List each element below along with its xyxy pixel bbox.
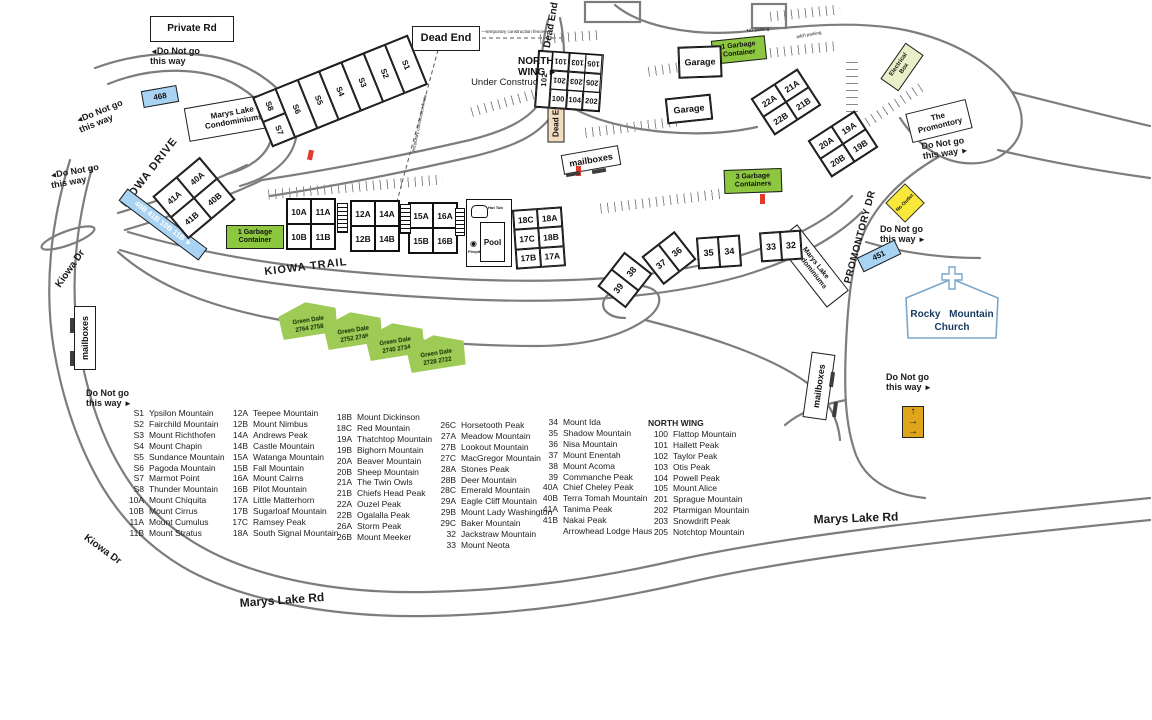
stairs-icon: [455, 208, 465, 236]
legend-row: 27A Meadow Mountain: [436, 431, 552, 442]
legend-row: 102 Taylor Peak: [648, 451, 749, 462]
unit-name: Marmot Point: [149, 473, 200, 484]
unit-code: 27B: [436, 442, 456, 453]
unit-name: Snowdrift Peak: [673, 516, 730, 527]
red-marker: [760, 194, 765, 204]
unit-name: Mount Enentah: [563, 450, 621, 461]
unit-name: Powell Peak: [673, 473, 720, 484]
church-name-line1: Rocky Mountain: [900, 309, 1004, 322]
unit-label-text: S4: [334, 85, 346, 97]
unit-code: 19A: [332, 434, 352, 445]
unit-name: Mount Dickinson: [357, 412, 420, 423]
unit-code: 12A: [228, 408, 248, 419]
hot-tub-label: Hot Tub: [488, 206, 508, 210]
unit-label: 202: [582, 91, 600, 111]
unit-code: 103: [648, 462, 668, 473]
unit-label-text: S2: [378, 67, 390, 79]
unit-name: Sprague Mountain: [673, 494, 742, 505]
unit-code: 203: [648, 516, 668, 527]
unit-name: Ypsilon Mountain: [149, 408, 214, 419]
unit-code: 33: [436, 540, 456, 551]
sign-text: 1 Garbage: [238, 229, 272, 237]
unit-code: [538, 526, 558, 537]
legend-row: 39 Commanche Peak: [538, 472, 652, 483]
unit-name: Tanima Peak: [563, 504, 612, 515]
legend-row: 36 Nisa Mountain: [538, 439, 652, 450]
unit-code: 38: [538, 461, 558, 472]
arrow-icon: ◄: [150, 47, 157, 56]
unit-name: Chief Cheley Peak: [563, 482, 633, 493]
sign-text: Private Rd: [167, 23, 216, 35]
legend-row: 20A Beaver Mountain: [332, 456, 432, 467]
unit-code: 29A: [436, 496, 456, 507]
unit-label: 18A: [537, 207, 562, 228]
legend-row: S8 Thunder Mountain: [124, 484, 225, 495]
unit-code: S5: [124, 452, 144, 463]
legend-row: 26B Mount Meeker: [332, 532, 432, 543]
north-wing-label-line1: NORTH: [518, 56, 557, 67]
unit-name: Watanga Mountain: [253, 452, 324, 463]
unit-code: 105: [648, 483, 668, 494]
legend-row: 28B Deer Mountain: [436, 475, 552, 486]
do-not-go-label: ◄Do Not go this way: [150, 46, 200, 67]
unit-name: Mount Chiquita: [149, 495, 206, 506]
unit-label: Garage: [678, 46, 721, 77]
legend-row: 19A Thatchtop Mountain: [332, 434, 432, 445]
unit-code: 17C: [228, 517, 248, 528]
unit-label: 103: [568, 53, 586, 73]
unit-code: 26B: [332, 532, 352, 543]
unit-code: 29B: [436, 507, 456, 518]
unit-code: 11B: [124, 528, 144, 539]
sign-text: Containers: [735, 180, 772, 189]
unit-name: Mount Cirrus: [149, 506, 198, 517]
unit-code: 14B: [228, 441, 248, 452]
unit-name: Thatchtop Mountain: [357, 434, 432, 445]
legend-row: 29A Eagle Cliff Mountain: [436, 496, 552, 507]
legend-row: 27B Lookout Mountain: [436, 442, 552, 453]
unit-code: 21B: [332, 488, 352, 499]
no-outlet-text: No Outlet: [885, 183, 925, 223]
unit-label: 203: [567, 72, 585, 92]
pool-area: Hot Tub Pool ◉ Firepit: [466, 199, 512, 267]
unit-name: Thunder Mountain: [149, 484, 218, 495]
unit-name: Castle Mountain: [253, 441, 314, 452]
marys-lake-condominiums-site-map: KIOWA DRIVEKiowa DrKiowa DrKIOWA TRAILMa…: [0, 0, 1152, 720]
unit-code: 29C: [436, 518, 456, 529]
building-garage: Garage: [677, 45, 722, 79]
unit-name: Mount Ida: [563, 417, 601, 428]
legend-row: 203 Snowdrift Peak: [648, 516, 749, 527]
unit-code: 12B: [228, 419, 248, 430]
unit-label: 32: [780, 231, 802, 260]
north-wing-label-line2: WING: [518, 67, 545, 78]
unit-code: 10B: [124, 506, 144, 517]
legend-row: 26A Storm Peak: [332, 521, 432, 532]
legend-row: 104 Powell Peak: [648, 473, 749, 484]
firepit-icon: ◉: [470, 240, 477, 248]
unit-label: 15B: [409, 228, 433, 253]
legend-row: 37 Mount Enentah: [538, 450, 652, 461]
sign-text: mailboxes: [80, 316, 90, 360]
stairs-icon: [400, 204, 411, 234]
unit-label: 12B: [351, 226, 375, 251]
unit-code: 35: [538, 428, 558, 439]
arrow-icon: ►: [548, 67, 557, 77]
legend-row: 10A Mount Chiquita: [124, 495, 225, 506]
unit-name: Fall Mountain: [253, 463, 304, 474]
unit-label: 11B: [311, 224, 335, 249]
unit-name: Mount Chapin: [149, 441, 202, 452]
unit-label: 105: [585, 54, 603, 74]
do-not-go-line1: Do Not go: [86, 388, 129, 398]
unit-label: 14B: [375, 226, 399, 251]
unit-name: Little Matterhorn: [253, 495, 314, 506]
unit-code: 201: [648, 494, 668, 505]
legend-row: 105 Mount Alice: [648, 483, 749, 494]
legend-row: 202 Ptarmigan Mountain: [648, 505, 749, 516]
do-not-go-line1: Do Not go: [157, 46, 200, 56]
legend-column: 34 Mount Ida 35 Shadow Mountain 36 Nisa …: [538, 417, 652, 537]
unit-code: 202: [648, 505, 668, 516]
unit-code: 21A: [332, 477, 352, 488]
do-not-go-line2: this way: [150, 56, 186, 66]
legend-row: 34 Mount Ida: [538, 417, 652, 428]
unit-code: 28A: [436, 464, 456, 475]
unit-code: 22B: [332, 510, 352, 521]
legend-row: 15B Fall Mountain: [228, 463, 339, 474]
legend-row: 40B Terra Tomah Mountain: [538, 493, 652, 504]
unit-name: Red Mountain: [357, 423, 410, 434]
unit-code: 32: [436, 529, 456, 540]
unit-name: Flattop Mountain: [673, 429, 736, 440]
arrow-icon: →: [908, 427, 918, 437]
unit-label: 15A: [409, 203, 433, 228]
unit-code: S2: [124, 419, 144, 430]
do-not-go-line2: this way: [886, 382, 922, 392]
unit-name: Mount Cumulus: [149, 517, 209, 528]
legend-row: 16B Pilot Mountain: [228, 484, 339, 495]
legend-column: NORTH WING 100 Flattop Mountain 101 Hall…: [648, 418, 749, 538]
unit-label-text: S1: [400, 58, 412, 70]
unit-label: 16B: [433, 228, 457, 253]
legend-items: 26C Horsetooth Peak 27A Meadow Mountain …: [436, 420, 552, 551]
unit-code: 36: [538, 439, 558, 450]
legend-row: S4 Mount Chapin: [124, 441, 225, 452]
unit-name: Beaver Mountain: [357, 456, 421, 467]
unit-code: 16B: [228, 484, 248, 495]
mailbox-bank: [70, 351, 74, 366]
unit-name: Nisa Mountain: [563, 439, 617, 450]
north-wing-rows: 101103105 201203205 100104202: [549, 52, 603, 111]
unit-name: Ouzel Peak: [357, 499, 401, 510]
unit-name: Terra Tomah Mountain: [563, 493, 647, 504]
unit-code: S7: [124, 473, 144, 484]
unit-code: 28C: [436, 485, 456, 496]
unit-name: Pagoda Mountain: [149, 463, 216, 474]
sign-text: 451: [871, 249, 887, 263]
legend-row: 38 Mount Acoma: [538, 461, 652, 472]
building-17-18: 18C18A17C18B17B17A: [512, 206, 566, 269]
unit-name: Ogalalla Peak: [357, 510, 410, 521]
unit-code: 15B: [228, 463, 248, 474]
unit-code: 101: [648, 440, 668, 451]
unit-label: 10B: [287, 224, 311, 249]
legend-row: 41A Tanima Peak: [538, 504, 652, 515]
unit-name: Chiefs Head Peak: [357, 488, 426, 499]
unit-code: 104: [648, 473, 668, 484]
unit-code: 41B: [538, 515, 558, 526]
legend-row: 100 Flattop Mountain: [648, 429, 749, 440]
unit-name: Arrowhead Lodge Haus: [563, 526, 652, 537]
unit-name: South Signal Mountain: [253, 528, 339, 539]
unit-name: Mount Richthofen: [149, 430, 216, 441]
unit-name: Mount Alice: [673, 483, 717, 494]
unit-name: Nakai Peak: [563, 515, 606, 526]
unit-name: Lookout Mountain: [461, 442, 529, 453]
sign-text: 468: [153, 91, 168, 102]
legend-row: 17A Little Matterhorn: [228, 495, 339, 506]
building-10-11: 10A11A10B11B: [286, 198, 336, 250]
church-name-line2: Church: [900, 322, 1004, 335]
sign-text: Container: [239, 237, 272, 245]
unit-label: 14A: [375, 201, 399, 226]
unit-label: 12A: [351, 201, 375, 226]
legend-row: 35 Shadow Mountain: [538, 428, 652, 439]
legend-row: 12B Mount Nimbus: [228, 419, 339, 430]
unit-name: Fairchild Mountain: [149, 419, 218, 430]
legend-row: S6 Pagoda Mountain: [124, 463, 225, 474]
unit-code: 205: [648, 527, 668, 538]
north-wing-label: NORTH WING ►: [518, 56, 557, 78]
unit-name: Mount Acoma: [563, 461, 615, 472]
unit-name: Notchtop Mountain: [673, 527, 744, 538]
arrow-icon: ►: [918, 235, 925, 244]
unit-name: Mount Nimbus: [253, 419, 308, 430]
unit-name: Emerald Mountain: [461, 485, 530, 496]
legend-row: 27C MacGregor Mountain: [436, 453, 552, 464]
unit-name: Jackstraw Mountain: [461, 529, 536, 540]
sign-garbage-containers: 3 GarbageContainers: [724, 168, 783, 194]
unit-code: 26C: [436, 420, 456, 431]
unit-code: 34: [538, 417, 558, 428]
unit-name: Otis Peak: [673, 462, 710, 473]
legend-column: 18B Mount Dickinson 18C Red Mountain 19A…: [332, 412, 432, 543]
mailbox-bank: [70, 318, 74, 333]
legend-row: 18C Red Mountain: [332, 423, 432, 434]
unit-code: 27A: [436, 431, 456, 442]
legend-row: S5 Sundance Mountain: [124, 452, 225, 463]
unit-code: 19B: [332, 445, 352, 456]
unit-name: Taylor Peak: [673, 451, 717, 462]
unit-label: 11A: [311, 199, 335, 224]
do-not-go-line1: Do Not go: [880, 224, 923, 234]
legend-row: 11A Mount Cumulus: [124, 517, 225, 528]
unit-name: Stones Peak: [461, 464, 509, 475]
unit-code: 18B: [332, 412, 352, 423]
sign-text: mailboxes: [811, 363, 827, 408]
legend-row: Arrowhead Lodge Haus: [538, 526, 652, 537]
directional-arrows-sign: ↑→→: [902, 406, 924, 438]
legend-row: 201 Sprague Mountain: [648, 494, 749, 505]
unit-name: Ramsey Peak: [253, 517, 306, 528]
legend-items: 18B Mount Dickinson 18C Red Mountain 19A…: [332, 412, 432, 543]
unit-label: 205: [584, 73, 602, 93]
unit-name: MacGregor Mountain: [461, 453, 541, 464]
unit-code: 18C: [332, 423, 352, 434]
unit-name: Hallett Peak: [673, 440, 719, 451]
unit-code: S3: [124, 430, 144, 441]
unit-code: 20B: [332, 467, 352, 478]
unit-name: Mount Meeker: [357, 532, 411, 543]
unit-name: Deer Mountain: [461, 475, 517, 486]
legend-row: 103 Otis Peak: [648, 462, 749, 473]
unit-code: S4: [124, 441, 144, 452]
unit-name: Sundance Mountain: [149, 452, 225, 463]
sign-mailboxes: mailboxes: [74, 306, 96, 370]
unit-code: 41A: [538, 504, 558, 515]
sign-private-rd: Private Rd: [150, 16, 234, 42]
firepit-label: Firepit: [468, 249, 480, 254]
legend-row: 20B Sheep Mountain: [332, 467, 432, 478]
unit-label-text: S8: [263, 99, 275, 111]
unit-code: 17A: [228, 495, 248, 506]
legend-column: 12A Teepee Mountain 12B Mount Nimbus 14A…: [228, 408, 339, 539]
arrow-icon: ►: [960, 146, 968, 156]
unit-code: 37: [538, 450, 558, 461]
legend-items: 100 Flattop Mountain 101 Hallett Peak 10…: [648, 429, 749, 538]
unit-code: 40B: [538, 493, 558, 504]
legend-row: 17B Sugarloaf Mountain: [228, 506, 339, 517]
arrow-icon: ►: [124, 399, 131, 408]
unit-label: 35: [697, 237, 720, 268]
unit-name: Horsetooth Peak: [461, 420, 524, 431]
pool-label: Pool: [484, 238, 501, 247]
unit-label: 17B: [516, 248, 541, 269]
unit-code: 18A: [228, 528, 248, 539]
building-34-35: 3534: [696, 235, 742, 270]
legend-row: 33 Mount Neota: [436, 540, 552, 551]
legend-row: S7 Marmot Point: [124, 473, 225, 484]
unit-name: Shadow Mountain: [563, 428, 631, 439]
building-12-14: 12A14A12B14B: [350, 200, 400, 252]
legend-row: 29C Baker Mountain: [436, 518, 552, 529]
unit-label-text: S3: [356, 76, 368, 88]
legend-row: 21A The Twin Owls: [332, 477, 432, 488]
unit-name: The Twin Owls: [357, 477, 413, 488]
unit-code: 28B: [436, 475, 456, 486]
legend-header: NORTH WING: [648, 418, 749, 429]
unit-code: 102: [648, 451, 668, 462]
unit-code: S1: [124, 408, 144, 419]
unit-code: 39: [538, 472, 558, 483]
building-15-16: 15A16A15B16B: [408, 202, 458, 254]
legend-row: 205 Notchtop Mountain: [648, 527, 749, 538]
unit-name: Commanche Peak: [563, 472, 633, 483]
unit-label: 10A: [287, 199, 311, 224]
unit-name: Storm Peak: [357, 521, 401, 532]
legend-row: 40A Chief Cheley Peak: [538, 482, 652, 493]
unit-name: Teepee Mountain: [253, 408, 318, 419]
unit-code: 10A: [124, 495, 144, 506]
unit-name: Eagle Cliff Mountain: [461, 496, 537, 507]
legend-row: 17C Ramsey Peak: [228, 517, 339, 528]
unit-name: Ptarmigan Mountain: [673, 505, 749, 516]
unit-code: 26A: [332, 521, 352, 532]
rocky-mountain-church: Rocky Mountain Church: [900, 266, 1004, 340]
legend-row: 10B Mount Cirrus: [124, 506, 225, 517]
unit-label: 18C: [513, 209, 538, 230]
arrow-icon: ►: [924, 383, 931, 392]
sign-text: Dead End: [421, 32, 472, 45]
no-outlet-sign: No Outlet: [891, 189, 919, 217]
unit-code: 14A: [228, 430, 248, 441]
unit-name: Mount Cairns: [253, 473, 304, 484]
legend-row: 32 Jackstraw Mountain: [436, 529, 552, 540]
unit-label-text: S5: [312, 94, 324, 106]
legend-row: 14A Andrews Peak: [228, 430, 339, 441]
north-wing-row: 201203205: [550, 70, 601, 92]
unit-name: Bighorn Mountain: [357, 445, 424, 456]
unit-label: 33: [760, 232, 782, 261]
unit-label-text: S6: [290, 102, 302, 114]
legend-row: S2 Fairchild Mountain: [124, 419, 225, 430]
unit-code: 100: [648, 429, 668, 440]
do-not-go-label: Do Not go this way ►: [880, 224, 925, 245]
unit-label: 16A: [433, 203, 457, 228]
unit-code: 27C: [436, 453, 456, 464]
unit-label: 17C: [514, 228, 539, 249]
legend-row: 28A Stones Peak: [436, 464, 552, 475]
unit-label: 17A: [540, 246, 565, 267]
legend-row: 21B Chiefs Head Peak: [332, 488, 432, 499]
unit-name: Andrews Peak: [253, 430, 308, 441]
unit-code: 17B: [228, 506, 248, 517]
legend-row: 28C Emerald Mountain: [436, 485, 552, 496]
do-not-go-line2: this way: [86, 398, 122, 408]
stairs-icon: [337, 203, 348, 233]
legend-row: 11B Mount Stratus: [124, 528, 225, 539]
legend-row: S3 Mount Richthofen: [124, 430, 225, 441]
sign-garbage-container: 1 GarbageContainer: [226, 225, 284, 249]
unit-label-text: S7: [273, 123, 285, 135]
unit-name: Sheep Mountain: [357, 467, 419, 478]
unit-name: Pilot Mountain: [253, 484, 307, 495]
unit-label: 18B: [538, 227, 563, 248]
legend-row: 16A Mount Cairns: [228, 473, 339, 484]
building-32-33: 3332: [759, 230, 803, 263]
legend-row: 19B Bighorn Mountain: [332, 445, 432, 456]
do-not-go-line1: Do Not go: [886, 372, 929, 382]
do-not-go-label: Do Not go this way ►: [886, 372, 931, 393]
legend-column: S1 Ypsilon Mountain S2 Fairchild Mountai…: [124, 408, 225, 539]
unit-name: Meadow Mountain: [461, 431, 530, 442]
unit-name: Mount Stratus: [149, 528, 202, 539]
legend-row: 29B Mount Lady Washington: [436, 507, 552, 518]
legend-column: 26C Horsetooth Peak 27A Meadow Mountain …: [436, 420, 552, 551]
legend-row: 18A South Signal Mountain: [228, 528, 339, 539]
legend-row: 14B Castle Mountain: [228, 441, 339, 452]
unit-label: Garage: [666, 95, 712, 123]
legend-row: 41B Nakai Peak: [538, 515, 652, 526]
legend-row: 15A Watanga Mountain: [228, 452, 339, 463]
unit-name: Baker Mountain: [461, 518, 521, 529]
unit-code: S6: [124, 463, 144, 474]
legend-row: 22B Ogalalla Peak: [332, 510, 432, 521]
legend-items: 34 Mount Ida 35 Shadow Mountain 36 Nisa …: [538, 417, 652, 537]
legend-row: 18B Mount Dickinson: [332, 412, 432, 423]
unit-name: Mount Neota: [461, 540, 510, 551]
